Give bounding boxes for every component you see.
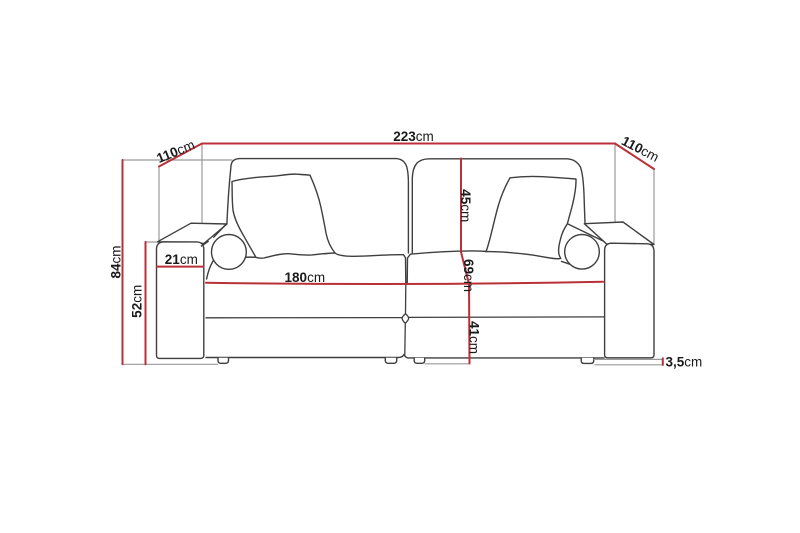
svg-text:52cm: 52cm xyxy=(130,285,145,318)
svg-text:41cm: 41cm xyxy=(467,321,482,354)
svg-text:69cm: 69cm xyxy=(461,259,476,292)
svg-text:84cm: 84cm xyxy=(109,245,124,278)
svg-text:45cm: 45cm xyxy=(458,189,473,222)
svg-text:110cm: 110cm xyxy=(154,137,196,166)
svg-text:3,5cm: 3,5cm xyxy=(666,354,703,369)
svg-text:21cm: 21cm xyxy=(165,252,198,267)
svg-text:223cm: 223cm xyxy=(393,129,434,144)
svg-text:180cm: 180cm xyxy=(285,270,326,285)
